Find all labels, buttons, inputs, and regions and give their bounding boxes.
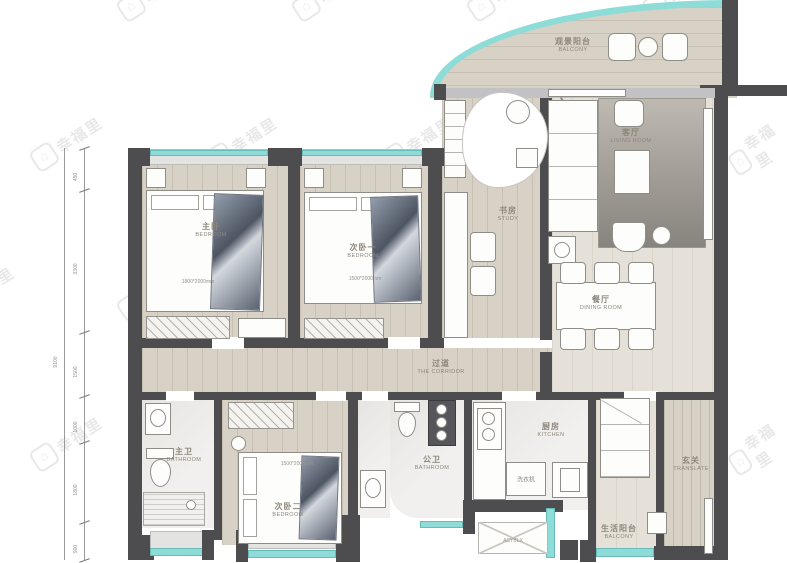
bedroom-one-label: 次卧一BEDROOM: [347, 243, 378, 261]
ruler-segment-value: 900: [73, 545, 79, 553]
ruler-tick: [79, 520, 90, 525]
study-chair: [470, 266, 496, 296]
dining-chair: [628, 328, 654, 350]
life-balcony-label: 生活阳台BALCONY: [601, 524, 637, 542]
entry-door-leaf: [704, 498, 713, 554]
wall-kitchen-balcony: [588, 392, 596, 560]
dining-room-label: 餐厅DINING ROOM: [580, 295, 622, 313]
door-gap: [502, 391, 536, 401]
burner: [482, 412, 495, 425]
living-stool: [614, 100, 644, 127]
ruler-total-value: 9100: [53, 356, 59, 367]
armchair: [612, 222, 646, 252]
coffee-table: [614, 150, 650, 194]
vanity-basin: [150, 409, 166, 427]
dining-chair: [628, 262, 654, 284]
life-balcony-window-glass: [596, 548, 654, 557]
cloud-side-table: [516, 148, 538, 168]
wall-bath-bed2: [214, 400, 222, 540]
master-blanket: [210, 193, 264, 311]
small-window-glass: [420, 521, 463, 528]
pillow: [243, 457, 257, 495]
washer-label: 洗衣机: [517, 475, 535, 484]
study-chair: [470, 232, 496, 262]
nightstand: [304, 168, 324, 188]
master-dresser: [238, 318, 286, 338]
west-wall: [128, 148, 142, 560]
watermark: ⌂幸福里: [465, 0, 544, 24]
dining-chair: [560, 328, 586, 350]
wall-pier: [560, 540, 578, 560]
ruler-tick: [79, 440, 90, 445]
pillow: [243, 499, 257, 537]
burner: [482, 428, 495, 441]
bedroom-one-window-glass: [302, 150, 422, 156]
master-bath-label: 主卫BATHROOM: [167, 447, 202, 465]
public-toilet-tank: [394, 402, 420, 412]
south-foyer-wall: [654, 546, 728, 560]
kitchen-sink-basin: [560, 468, 580, 492]
cloud-stool: [506, 100, 530, 124]
house-icon: ⌂: [726, 447, 754, 477]
water-heater: [647, 512, 667, 534]
house-icon: ⌂: [290, 0, 323, 24]
balcony-cabinet: [600, 398, 650, 478]
south-sill: [150, 531, 204, 549]
sofa: [548, 100, 598, 232]
dining-chair: [560, 262, 586, 284]
pillow: [309, 197, 357, 211]
master-bedroom-dim: 1800*2000mm: [182, 279, 215, 285]
ruler-tick: [79, 146, 90, 151]
shower-area: [143, 492, 205, 526]
wall-stub: [540, 352, 552, 392]
ruler-segment-value: 1800: [73, 484, 79, 495]
south-window-glass: [248, 550, 336, 558]
door-gap: [388, 337, 420, 349]
balcony-stool: [608, 33, 636, 61]
door-gap: [362, 391, 388, 401]
ruler-tick: [79, 394, 90, 399]
wall-pier: [268, 148, 302, 166]
ruler-tick: [79, 330, 90, 335]
sliding-door-panel: [548, 89, 626, 97]
living-round-table: [652, 226, 671, 245]
side-table-decor: [554, 242, 570, 258]
house-icon: ⌂: [726, 147, 754, 177]
corridor-label: 过道THE CORRIDOR: [417, 359, 464, 377]
master-wardrobe: [146, 316, 230, 339]
study-desk: [444, 192, 468, 338]
ruler-tick: [79, 558, 90, 563]
bedroom-two-label: 次卧二BEDROOM: [272, 502, 303, 520]
shower-head: [436, 417, 447, 428]
shower-head: [436, 404, 447, 415]
living-room-label: 客厅LIVING ROOM: [610, 128, 651, 146]
dimension-ruler: 45033001500100018009009100: [0, 0, 120, 563]
balcony-stool: [662, 33, 688, 61]
nightstand: [246, 168, 266, 188]
view-balcony-label: 观景阳台BALCONY: [555, 37, 591, 55]
bedroom-two-blanket: [299, 455, 340, 540]
bedroom-one-wardrobe: [304, 318, 384, 339]
dining-chair: [594, 328, 620, 350]
dining-chair: [594, 262, 620, 284]
master-bedroom-label: 主卧BEDROOM: [195, 222, 226, 240]
wall-pier: [463, 510, 475, 534]
ruler-tick: [79, 188, 90, 193]
east-wall: [714, 85, 728, 560]
divider-pier: [434, 84, 446, 100]
lobby-basin: [365, 478, 381, 498]
public-bath-label: 公卫BATHROOM: [415, 455, 450, 473]
ruler-segment-value: 450: [73, 173, 79, 181]
nightstand: [402, 168, 422, 188]
house-icon: ⌂: [465, 0, 498, 24]
bedroom-two-dim: 1500*2000mm: [281, 461, 314, 467]
watermark: ⌂幸福里: [721, 417, 787, 484]
ruler-segment-value: 1000: [73, 421, 79, 432]
nightstand: [146, 168, 166, 188]
door-gap: [166, 391, 194, 401]
wall-bed1-study: [428, 148, 442, 340]
foyer-label: 玄关TRANSLATE: [673, 456, 709, 474]
pillow: [151, 195, 199, 210]
wall-pier: [580, 540, 596, 562]
floor-plan: 观景阳台BALCONY 客厅LIVING ROOM 书房STUDY 餐厅DINI…: [0, 0, 787, 563]
watermark: ⌂幸福里: [290, 0, 369, 24]
south-window-glass: [150, 548, 204, 556]
tv-cabinet: [703, 108, 713, 240]
floor-drain: [186, 500, 196, 510]
shower-head: [436, 430, 447, 441]
wall-balcony-foyer: [656, 392, 664, 560]
study-label: 书房STUDY: [498, 206, 519, 224]
master-window-glass: [150, 150, 268, 156]
ruler-segment-value: 1500: [73, 366, 79, 377]
bedroom-two-stool: [231, 436, 246, 451]
bedroom-two-wardrobe: [228, 402, 294, 429]
watermark: ⌂幸福里: [721, 117, 787, 184]
equipment-label: ACYBLX: [503, 538, 523, 544]
watermark: ⌂幸福里: [115, 0, 194, 24]
balcony-east-pier: [722, 0, 738, 92]
wall-pier: [202, 530, 214, 560]
bedroom-one-dim: 1500*2000mm: [349, 276, 382, 282]
wall-master-bed1: [288, 165, 300, 340]
balcony-round-table: [638, 37, 658, 57]
door-gap: [316, 391, 346, 401]
corridor-floor: [142, 348, 552, 392]
kitchen-label: 厨房KITCHEN: [538, 422, 565, 440]
ruler-segment-value: 3300: [73, 263, 79, 274]
